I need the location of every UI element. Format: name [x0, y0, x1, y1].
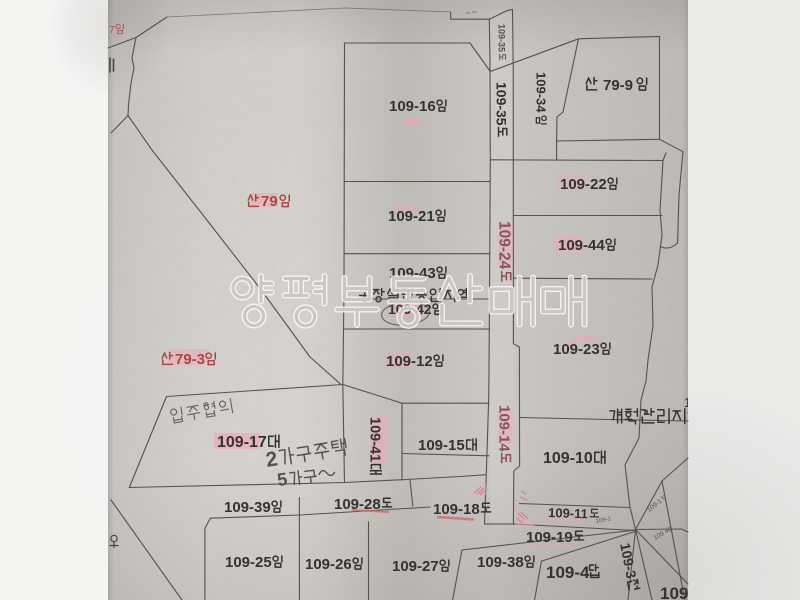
svg-text:109-27: 109-27: [392, 558, 439, 575]
svg-text:109-35: 109-35: [497, 24, 507, 52]
svg-text:109-44: 109-44: [558, 237, 605, 254]
svg-text:109-34: 109-34: [534, 72, 549, 113]
svg-text:109-25: 109-25: [225, 554, 272, 571]
svg-text:109-21: 109-21: [388, 208, 435, 225]
svg-text:109-18: 109-18: [433, 501, 480, 518]
svg-text:109-24: 109-24: [496, 221, 513, 270]
svg-text:79-3: 79-3: [175, 351, 205, 368]
svg-text:109-4: 109-4: [546, 563, 590, 582]
svg-text:109-14: 109-14: [496, 405, 513, 452]
svg-text:109-28: 109-28: [334, 496, 381, 513]
svg-text:109-35: 109-35: [494, 82, 510, 126]
svg-text:7: 7: [109, 24, 115, 36]
svg-text:109-19: 109-19: [526, 529, 573, 546]
svg-text:109-15: 109-15: [418, 437, 465, 454]
svg-text:109-22: 109-22: [560, 176, 607, 193]
svg-text:79-9: 79-9: [603, 77, 633, 94]
svg-text:109-39: 109-39: [224, 499, 271, 516]
svg-text:109-26: 109-26: [305, 556, 352, 573]
svg-text:109-41: 109-41: [367, 417, 383, 462]
svg-text:109-11: 109-11: [548, 505, 588, 521]
svg-text:109-12: 109-12: [386, 353, 433, 370]
svg-text:109-17: 109-17: [217, 434, 267, 451]
svg-text:109-23: 109-23: [553, 341, 600, 358]
svg-text:109-38: 109-38: [477, 554, 524, 571]
svg-text:79: 79: [261, 193, 278, 210]
svg-text:109-16: 109-16: [389, 98, 436, 115]
svg-text:109-10: 109-10: [543, 450, 593, 467]
